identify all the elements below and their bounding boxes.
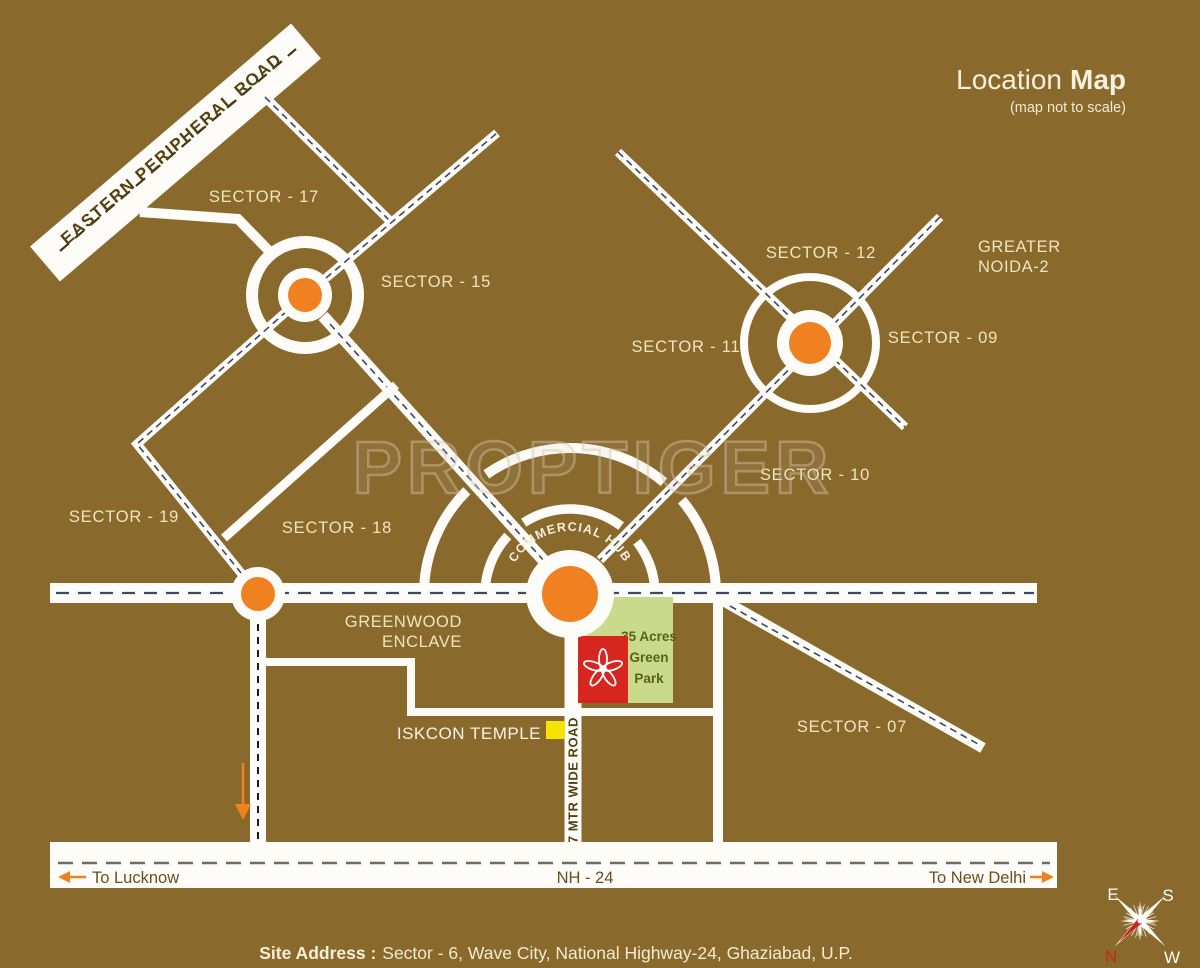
site-address: Site Address :Sector - 6, Wave City, Nat… — [259, 943, 852, 963]
eastern-peripheral-road: EASTERN PERIPHERAL ROAD — [45, 41, 306, 264]
green-park-label-1: 35 Acres — [621, 629, 677, 644]
sector-09-label: SECTOR - 09 — [888, 329, 998, 347]
sector-19-label: SECTOR - 19 — [69, 508, 179, 526]
sector15-northeast-road — [326, 133, 497, 278]
sector-12-label: SECTOR - 12 — [766, 244, 876, 262]
sector11-roundabout-center — [777, 310, 843, 376]
to-new-delhi-label: To New Delhi — [929, 869, 1026, 887]
greenwood-enclave-label-2: ENCLAVE — [382, 633, 462, 651]
greater-noida-label-2: NOIDA-2 — [978, 258, 1049, 276]
site-address-label: Site Address : — [259, 943, 376, 963]
greater-noida-label-1: GREATER — [978, 238, 1061, 256]
map-title-block: LocationMap (map not to scale) — [956, 64, 1126, 116]
sector-11-label: SECTOR - 11 — [631, 338, 740, 356]
sector-07-label: SECTOR - 07 — [797, 718, 907, 736]
west-junction-roundabout — [231, 567, 285, 621]
compass-south-label: S — [1162, 886, 1173, 905]
sector-17-label: SECTOR - 17 — [209, 188, 319, 206]
location-map-page: EASTERN PERIPHERAL ROAD — [0, 0, 1200, 968]
commercial-hub-center — [526, 550, 614, 638]
project-red-marker — [578, 636, 628, 703]
green-park-label-2: Green — [629, 650, 668, 665]
sector-15-label: SECTOR - 15 — [381, 273, 491, 291]
compass-icon: E S N W — [1105, 885, 1180, 967]
nh24-label: NH - 24 — [557, 869, 614, 887]
proptiger-watermark: PROPTIGER — [353, 426, 834, 509]
to-lucknow-label: To Lucknow — [92, 869, 179, 887]
sector19-v-road — [137, 311, 287, 594]
57mtr-road-label: 57 MTR WIDE ROAD — [566, 717, 581, 851]
map-subtitle: (map not to scale) — [1010, 100, 1126, 116]
greenwood-enclave-label-1: GREENWOOD — [345, 613, 462, 631]
compass-east-label: E — [1107, 885, 1118, 904]
nh24-highway: To Lucknow NH - 24 To New Delhi — [50, 842, 1057, 888]
sector15-roundabout-center — [278, 268, 332, 322]
page-title: LocationMap — [956, 64, 1126, 95]
map-svg: EASTERN PERIPHERAL ROAD — [0, 0, 1200, 968]
sector17-elbow-road — [140, 212, 271, 253]
sector-18-label: SECTOR - 18 — [282, 519, 392, 537]
iskcon-temple-marker — [546, 721, 565, 739]
green-park-label-3: Park — [634, 671, 664, 686]
south-direction-arrow — [235, 763, 251, 820]
iskcon-temple-label: ISKCON TEMPLE — [397, 724, 541, 743]
compass-west-label: W — [1164, 948, 1180, 967]
compass-north-label: N — [1105, 947, 1117, 966]
